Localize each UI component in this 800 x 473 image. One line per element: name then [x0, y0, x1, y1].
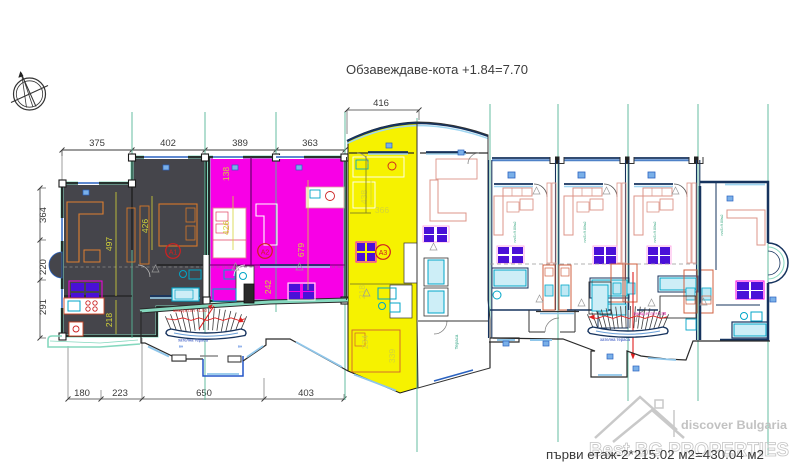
svg-text:426: 426: [140, 219, 150, 233]
svg-text:вн: вн: [179, 344, 183, 349]
svg-text:218: 218: [104, 313, 114, 327]
svg-text:межд.ет.пл +1.50: межд.ет.пл +1.50: [173, 308, 207, 313]
svg-text:363: 363: [302, 138, 318, 149]
svg-text:438: 438: [359, 190, 369, 204]
svg-text:първи етаж-2*215.02 м2=430.04: първи етаж-2*215.02 м2=430.04 м2: [546, 448, 764, 462]
svg-text:138: 138: [221, 167, 231, 181]
svg-text:хателна тераса: хателна тераса: [600, 337, 631, 342]
svg-text:291: 291: [38, 299, 49, 315]
svg-text:403: 403: [298, 388, 314, 399]
svg-text:вн: вн: [238, 344, 242, 349]
svg-text:180: 180: [74, 388, 90, 399]
svg-text:402: 402: [160, 138, 176, 149]
svg-text:пл.Б=9.80м2: пл.Б=9.80м2: [513, 222, 517, 243]
svg-text:364: 364: [38, 207, 49, 223]
svg-text:389: 389: [232, 138, 248, 149]
svg-text:А1: А1: [169, 250, 178, 257]
svg-text:Тераса: Тераса: [454, 334, 459, 349]
svg-text:497: 497: [104, 237, 114, 251]
svg-text:пл.Б=9.80м2: пл.Б=9.80м2: [653, 222, 657, 243]
svg-text:679: 679: [296, 243, 306, 257]
svg-text:discover Bulgaria: discover Bulgaria: [681, 420, 788, 432]
svg-text:242: 242: [263, 280, 273, 294]
svg-text:416: 416: [373, 98, 389, 109]
svg-text:хателна тераса: хателна тераса: [178, 338, 209, 343]
svg-text:234: 234: [360, 335, 370, 349]
svg-text:пл.Б=9.80м2: пл.Б=9.80м2: [720, 215, 724, 236]
svg-text:А2: А2: [261, 250, 270, 257]
svg-text:218: 218: [357, 285, 367, 299]
svg-text:375: 375: [89, 138, 105, 149]
svg-text:223: 223: [112, 388, 128, 399]
svg-text:366: 366: [375, 205, 389, 215]
svg-text:339: 339: [387, 349, 397, 363]
svg-text:А3: А3: [379, 250, 388, 257]
svg-text:650: 650: [196, 388, 212, 399]
svg-text:220: 220: [38, 259, 49, 275]
svg-text:межд.ет.пл+7.88: межд.ет.пл+7.88: [634, 311, 667, 316]
svg-text:пл.Б=9.80м2: пл.Б=9.80м2: [583, 222, 587, 243]
svg-text:426: 426: [221, 221, 231, 235]
svg-text:Обзавеждаве-кота +1.84=7.70: Обзавеждаве-кота +1.84=7.70: [346, 63, 528, 77]
